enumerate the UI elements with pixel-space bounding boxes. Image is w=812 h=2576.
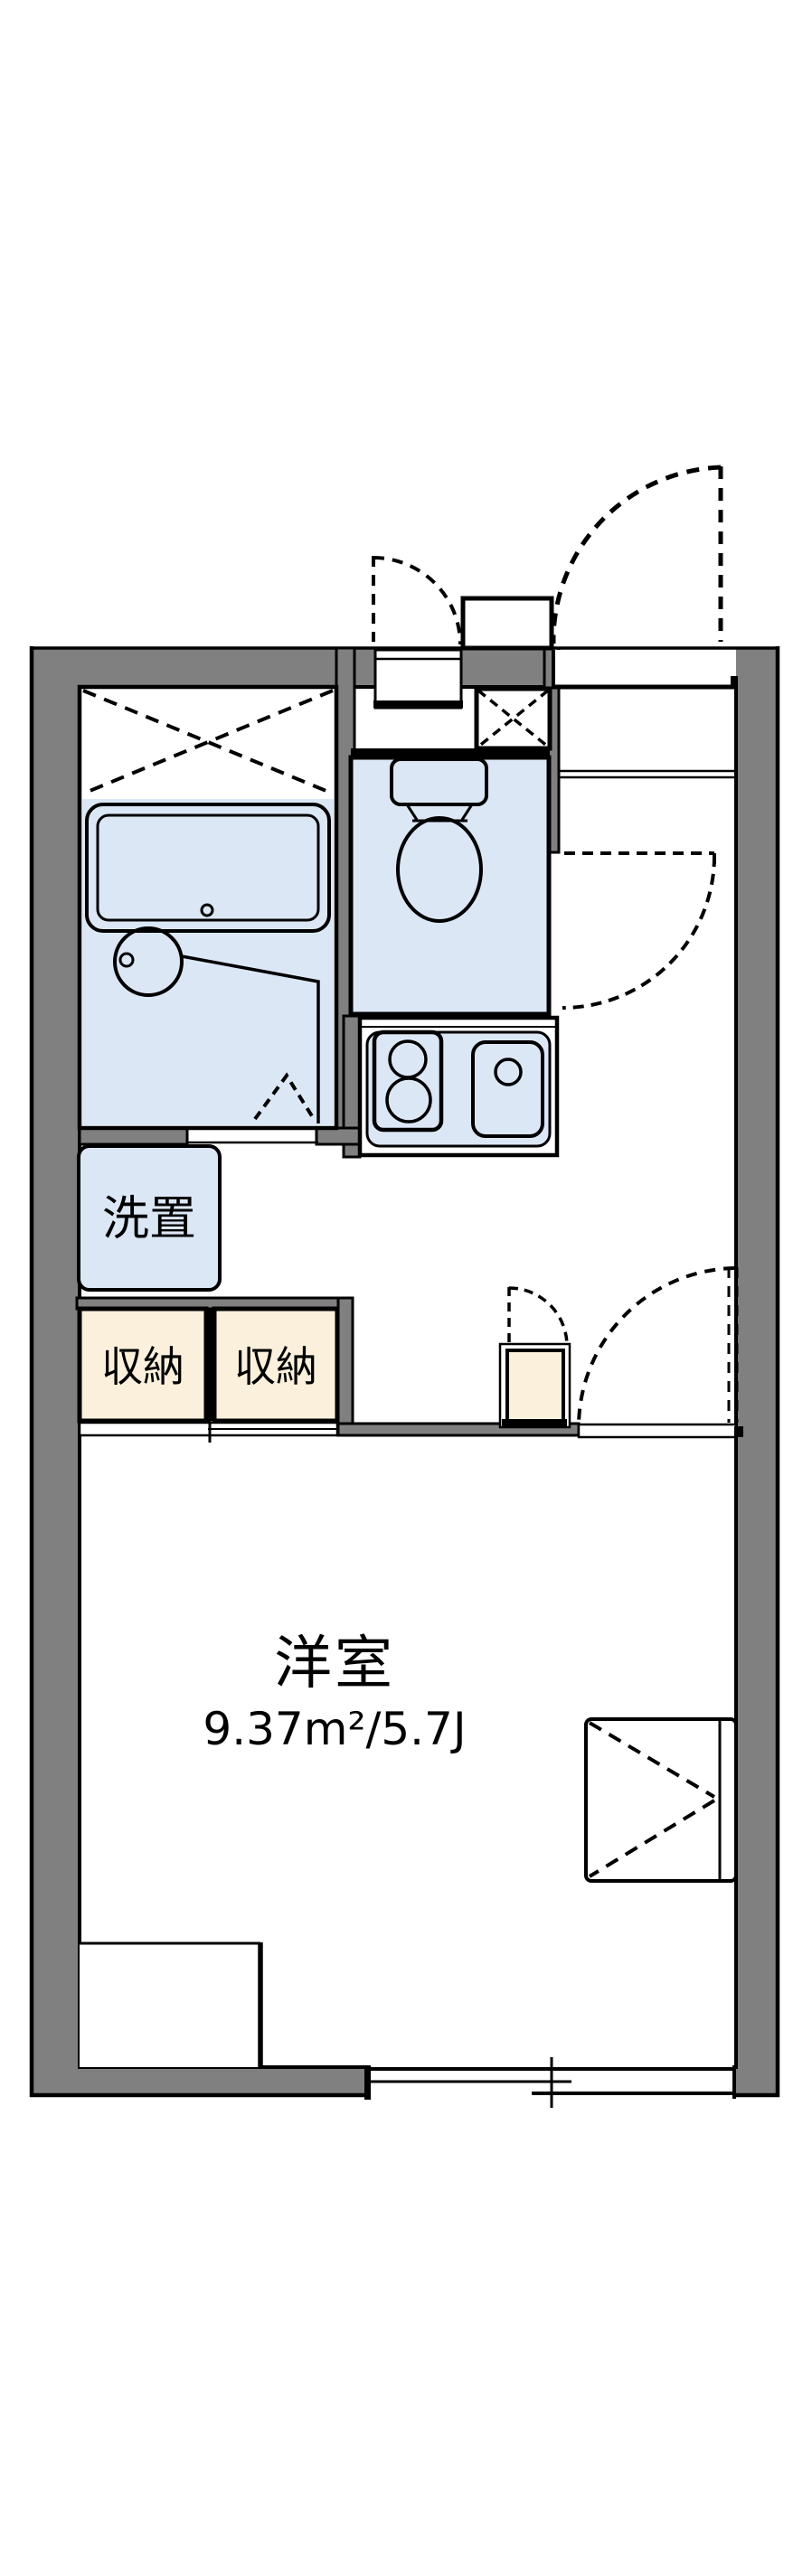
niche-hatch-door-swing xyxy=(373,556,460,644)
wall-niche xyxy=(373,650,463,708)
corner-counter-box xyxy=(80,1942,260,2068)
laundry-space: 洗置 xyxy=(79,1146,220,1290)
toilet-room xyxy=(351,748,550,1014)
main-room-area-label: 9.37m²/5.7J xyxy=(203,1703,466,1755)
storage-left-label: 収納 xyxy=(101,1342,184,1391)
storage-right-label: 収納 xyxy=(234,1342,317,1391)
laundry-label: 洗置 xyxy=(102,1192,196,1246)
entrance-door-swing xyxy=(553,466,721,644)
kitchen-unit xyxy=(360,1018,557,1155)
upper-cabinet xyxy=(477,689,550,748)
bath-room xyxy=(80,687,336,1142)
floor-plan-page: 洗置 収納 収納 洋室 9.37m² xyxy=(0,0,812,2576)
loft-ladder-box xyxy=(586,1719,736,1881)
meter-box xyxy=(463,598,552,648)
storage-closets: 収納 収納 xyxy=(80,1309,337,1443)
floor-plan: 洗置 収納 収納 洋室 9.37m² xyxy=(0,0,812,2576)
main-room-label: 洋室 xyxy=(274,1631,395,1697)
